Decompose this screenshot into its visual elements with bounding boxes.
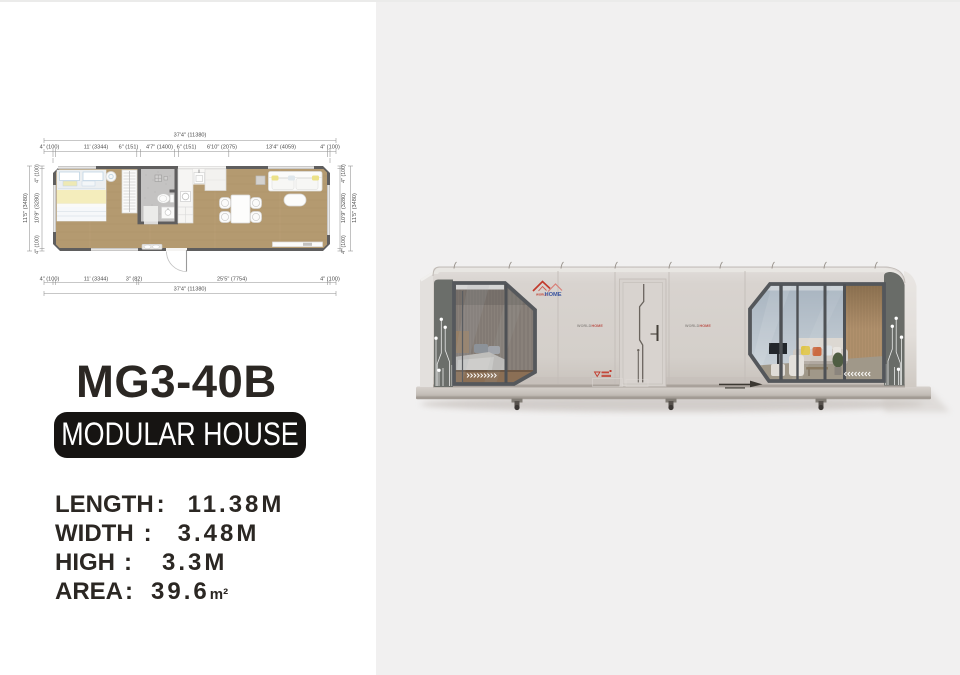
svg-text:37'4" (11380): 37'4" (11380) <box>174 287 207 293</box>
svg-text:6" (151): 6" (151) <box>177 144 197 150</box>
svg-text:11'5" (3480): 11'5" (3480) <box>352 193 358 223</box>
svg-text:4" (100): 4" (100) <box>35 235 41 254</box>
svg-text:6'10" (2075): 6'10" (2075) <box>207 144 237 150</box>
svg-text:4'7" (1400): 4'7" (1400) <box>146 144 173 150</box>
svg-text:37'4" (11380): 37'4" (11380) <box>174 133 207 139</box>
svg-text:11' (3344): 11' (3344) <box>84 144 109 150</box>
svg-text:4" (100): 4" (100) <box>40 144 60 150</box>
svg-text:HOME: HOME <box>545 292 562 298</box>
svg-text:4" (100): 4" (100) <box>320 144 340 150</box>
svg-text:10'9" (3280): 10'9" (3280) <box>341 193 347 223</box>
svg-text:10'9" (3280): 10'9" (3280) <box>35 193 41 223</box>
svg-text:4" (100): 4" (100) <box>35 164 41 183</box>
svg-text:6" (151): 6" (151) <box>119 144 139 150</box>
svg-text:4" (100): 4" (100) <box>341 164 347 183</box>
svg-text:WORLDHOME: WORLDHOME <box>685 324 711 328</box>
svg-text:11'5" (3480): 11'5" (3480) <box>23 193 29 223</box>
svg-text:WORLDHOME: WORLDHOME <box>577 324 603 328</box>
svg-text:25'5" (7754): 25'5" (7754) <box>217 277 247 283</box>
svg-text:4" (100): 4" (100) <box>320 277 340 283</box>
svg-text:4" (100): 4" (100) <box>40 277 60 283</box>
svg-text:3" (82): 3" (82) <box>126 277 143 283</box>
svg-text:11' (3344): 11' (3344) <box>84 277 109 283</box>
svg-text:4" (100): 4" (100) <box>341 235 347 254</box>
svg-text:13'4" (4059): 13'4" (4059) <box>266 144 296 150</box>
